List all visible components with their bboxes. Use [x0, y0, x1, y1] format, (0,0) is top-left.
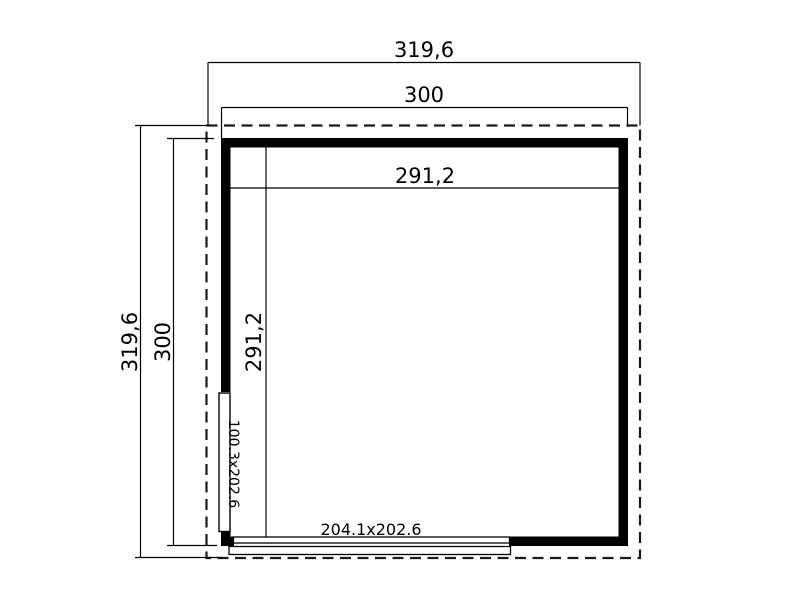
wall-top — [221, 138, 628, 148]
dim-wall-width — [222, 108, 628, 139]
wall-right — [619, 138, 629, 546]
floor-plan-canvas: 319,6 300 291,2 319,6 300 291,2 100.3x20… — [0, 0, 800, 600]
dim-overall-depth-label: 319,6 — [118, 312, 142, 372]
roof-outline-dashed — [207, 126, 641, 559]
dim-interior-depth-label: 291,2 — [242, 312, 266, 372]
walls — [221, 138, 628, 546]
dim-wall-depth-label: 300 — [151, 322, 175, 362]
dim-overall-depth — [135, 126, 222, 558]
wall-bottom-left-stub — [221, 537, 234, 547]
front-door-size-label: 204.1x202.6 — [320, 520, 421, 539]
dim-interior-width-label: 291,2 — [395, 164, 455, 188]
wall-left-upper — [221, 138, 231, 392]
front-door-panel-outer — [229, 547, 511, 555]
floor-plan-drawing: 319,6 300 291,2 319,6 300 291,2 100.3x20… — [0, 0, 800, 600]
dim-wall-width-label: 300 — [404, 83, 444, 107]
wall-bottom-right — [509, 537, 628, 547]
side-door-size-label: 100.3x202.6 — [225, 420, 241, 509]
dim-overall-width-label: 319,6 — [394, 38, 454, 62]
